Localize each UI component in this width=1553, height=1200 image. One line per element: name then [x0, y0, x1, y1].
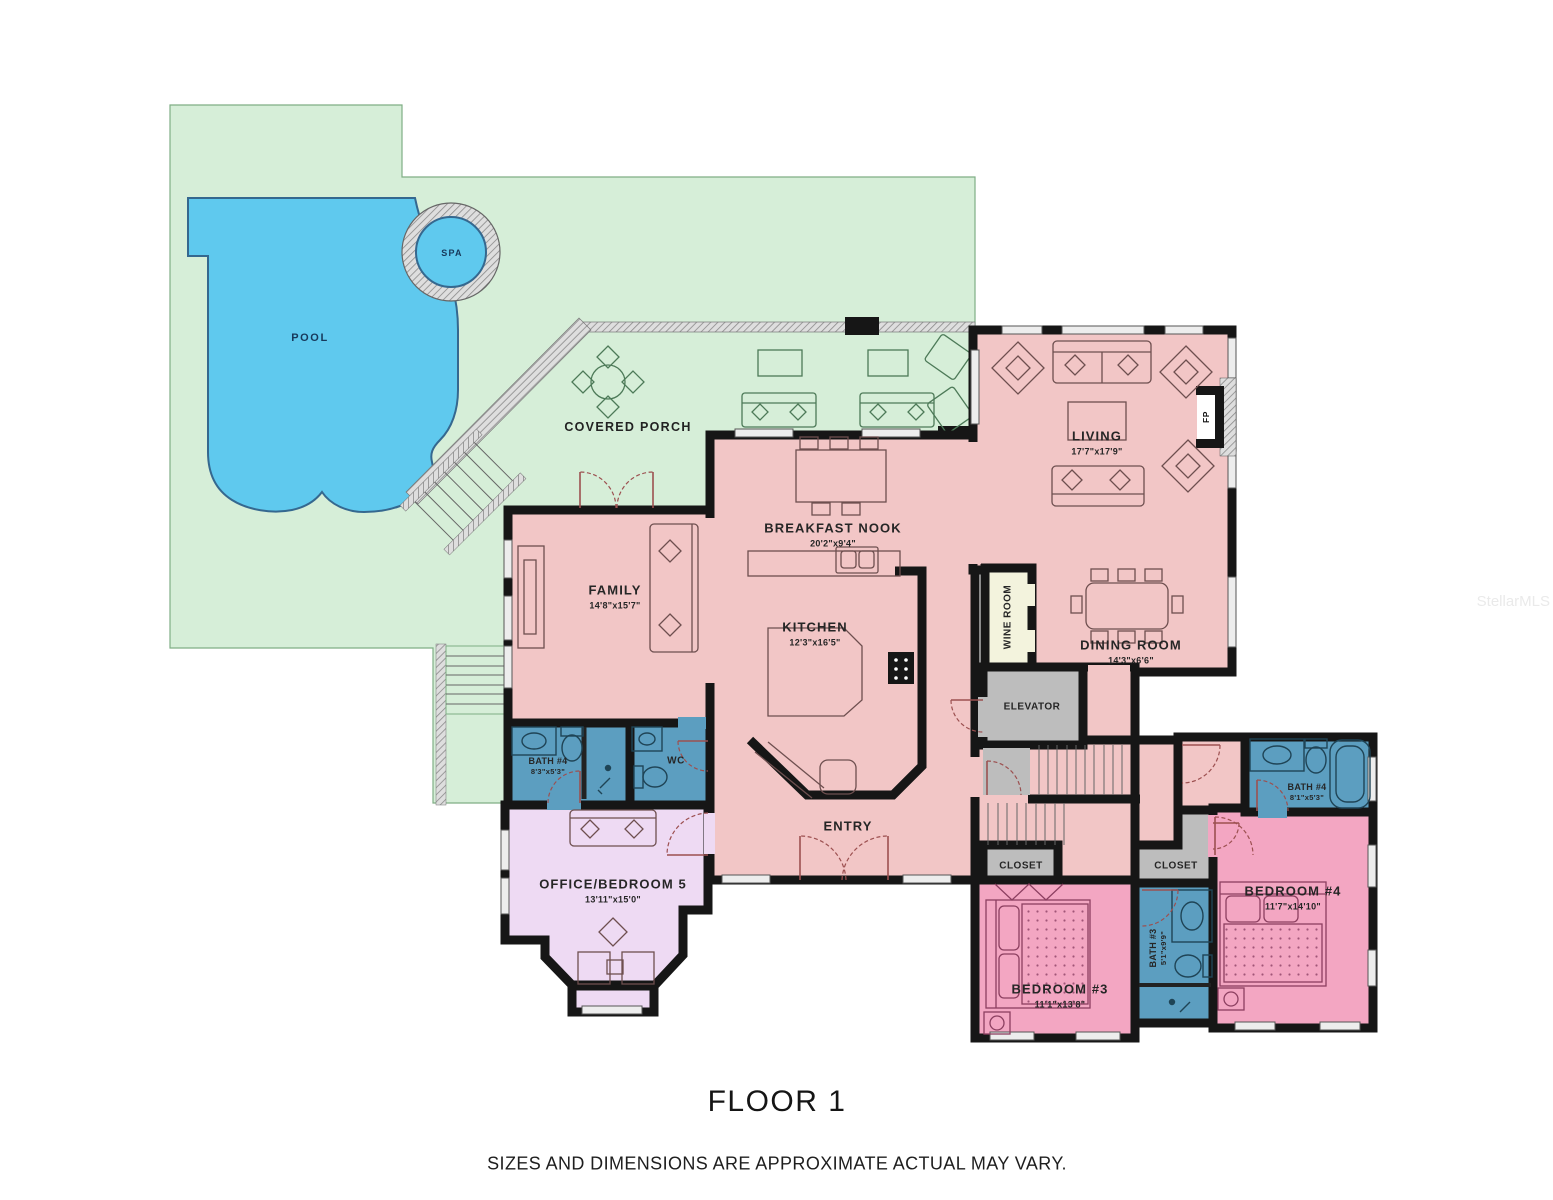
spa-label: SPA: [441, 248, 462, 258]
room-label-bath4-left: BATH #4 8'3"x5'3": [529, 756, 568, 776]
disclaimer-text: SIZES AND DIMENSIONS ARE APPROXIMATE ACT…: [487, 1154, 1067, 1175]
pool-label: POOL: [291, 332, 329, 344]
room-hallway-right: [1178, 737, 1245, 813]
room-label-family: FAMILY 14'8"x15'7": [588, 584, 641, 611]
room-label-dining: DINING ROOM 14'3"x6'6": [1080, 639, 1182, 666]
room-corridor: [1083, 667, 1135, 747]
room-label-breakfast-nook: BREAKFAST NOOK 20'2"x9'4": [764, 522, 901, 549]
fireplace-label: FP: [1201, 411, 1211, 423]
exterior-steps: [446, 646, 507, 714]
room-label-closet-left: CLOSET: [999, 860, 1043, 872]
room-label-bedroom3: BEDROOM #3 11'1"x13'8": [1012, 983, 1109, 1010]
room-label-kitchen: KITCHEN 12'3"x16'5": [782, 621, 847, 648]
room-label-entry: ENTRY: [823, 820, 872, 835]
room-label-wc: WC: [667, 755, 685, 767]
room-label-bedroom4: BEDROOM #4 11'7"x14'10": [1245, 885, 1342, 912]
room-family: [508, 510, 710, 725]
room-label-office: OFFICE/BEDROOM 5 13'11"x15'0": [539, 878, 687, 905]
room-label-closet-right: CLOSET: [1154, 860, 1198, 872]
porch-label: COVERED PORCH: [564, 420, 691, 434]
floorplan-page: POOL SPA COVERED PORCH LIVING 17'7"x17'9…: [0, 0, 1553, 1200]
floorplan-drawing: [0, 0, 1553, 1200]
watermark: StellarMLS: [1477, 593, 1550, 610]
cooktop-icon: [888, 652, 914, 684]
room-label-bath3: BATH #3 5'1"x9'9": [1148, 929, 1168, 968]
room-label-living: LIVING 17'7"x17'9": [1071, 430, 1122, 457]
floor-title: FLOOR 1: [708, 1085, 847, 1119]
room-label-elevator: ELEVATOR: [1004, 701, 1061, 713]
room-label-wine: WINE ROOM: [1002, 585, 1014, 650]
room-label-bath4-right: BATH #4 8'1"x5'3": [1288, 782, 1327, 802]
